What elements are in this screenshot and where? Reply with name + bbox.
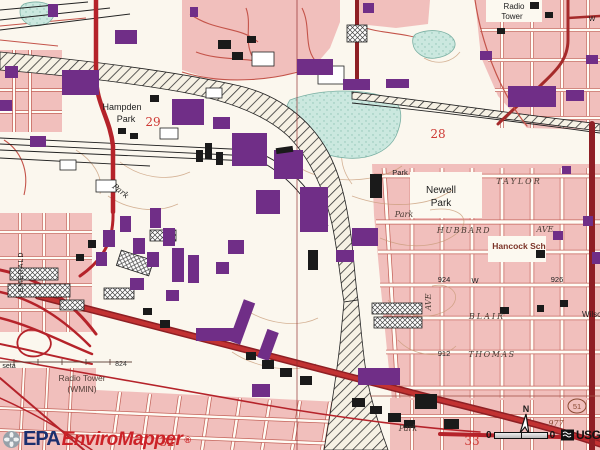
purple-building (343, 79, 370, 90)
scale-bar-graphic (494, 432, 548, 439)
black-building (246, 352, 256, 360)
purple-building (336, 250, 354, 262)
purple-building (150, 208, 161, 228)
purple-building (352, 228, 378, 246)
map-label: THOMAS (468, 350, 515, 359)
map-label: W (471, 276, 479, 285)
map-label: Park (398, 424, 418, 433)
topo-map-canvas[interactable]: RadioTowerHampdenPark29ParkParkNewellPar… (0, 0, 600, 450)
outlined-building (160, 128, 178, 139)
purple-building (130, 278, 144, 290)
hatched-building (347, 25, 367, 42)
black-building (444, 419, 459, 429)
black-building (130, 133, 138, 139)
purple-building (115, 30, 137, 44)
black-building (196, 150, 203, 162)
purple-building (216, 262, 229, 274)
map-label: (WMIN) (67, 384, 96, 394)
section-number-28: 28 (430, 127, 445, 141)
purple-building (163, 228, 175, 246)
purple-building (232, 133, 267, 166)
black-building (76, 254, 84, 261)
scale-bar: 0 0 (486, 430, 555, 441)
black-building (160, 320, 170, 328)
usgs-icon (561, 429, 575, 441)
map-label: EMERALD (18, 252, 25, 293)
purple-building (48, 4, 58, 17)
map-label: Park (117, 114, 136, 124)
map-label: Park (431, 198, 453, 209)
purple-building (172, 99, 204, 125)
map-label: Park (392, 168, 408, 177)
purple-building (256, 190, 280, 214)
purple-building (274, 150, 303, 179)
purple-building (386, 79, 409, 88)
scale-left-label: 0 (486, 430, 492, 441)
purple-building (166, 290, 179, 301)
black-building (352, 398, 365, 407)
section-number-29: 29 (145, 115, 160, 129)
usgs-logo-text: USGS (576, 428, 600, 442)
hatched-building (374, 317, 422, 328)
outlined-building (60, 160, 76, 170)
black-building (536, 250, 545, 258)
black-building (247, 36, 256, 43)
map-label: 824 (115, 361, 127, 368)
map-label: 977 (548, 419, 564, 428)
black-building (388, 413, 401, 422)
map-label: TAYLOR (496, 177, 542, 186)
purple-building (96, 252, 107, 266)
purple-building (592, 252, 600, 264)
purple-building (133, 238, 145, 254)
map-label: Radio Tower (58, 373, 105, 383)
black-building (415, 394, 437, 409)
black-building (370, 174, 382, 198)
purple-building (358, 368, 400, 385)
map-label: Park (394, 210, 414, 219)
black-building (537, 305, 544, 312)
purple-building (0, 100, 12, 111)
purple-building (297, 59, 333, 75)
black-building (118, 128, 126, 134)
map-label: Hampden (102, 102, 141, 112)
hatched-building (60, 300, 84, 310)
purple-building (190, 7, 198, 17)
map-label: seta (2, 363, 15, 370)
map-label: Tower (501, 12, 523, 21)
map-label: AVE (424, 293, 433, 311)
map-label: Hancock Sch (492, 241, 545, 251)
map-label: HUBBARD (436, 226, 491, 235)
purple-building (480, 51, 492, 60)
section-number-32: 32 (159, 435, 174, 449)
black-building (218, 40, 231, 49)
purple-building (103, 230, 115, 247)
purple-building (586, 55, 598, 64)
black-building (530, 2, 539, 9)
purple-building (30, 136, 46, 147)
purple-building (553, 231, 563, 240)
scale-right-label: 0 (550, 430, 556, 441)
map-label: 924 (438, 275, 451, 284)
purple-building (5, 66, 18, 78)
black-building (370, 406, 382, 414)
north-arrow-label: N (523, 404, 530, 414)
map-label: 926 (551, 275, 564, 284)
purple-building (213, 117, 230, 129)
black-building (262, 360, 274, 369)
purple-building (172, 248, 184, 282)
map-label: W (589, 16, 596, 23)
purple-building (363, 3, 374, 13)
purple-building (62, 70, 99, 95)
map-label: Newell (426, 185, 456, 196)
black-building (308, 250, 318, 270)
black-building (143, 308, 152, 315)
map-label: BLAIR (468, 312, 505, 321)
purple-building (508, 86, 556, 107)
purple-building (147, 252, 159, 267)
purple-building (300, 187, 328, 232)
black-building (232, 52, 243, 60)
black-building (497, 28, 505, 34)
black-building (560, 300, 568, 307)
section-number-33: 33 (464, 434, 479, 448)
black-building (300, 376, 312, 385)
black-building (280, 368, 292, 377)
black-building (88, 240, 96, 248)
purple-building (228, 240, 244, 254)
outlined-building (206, 88, 222, 98)
map-label: Radio (504, 2, 525, 11)
purple-building (566, 90, 584, 101)
map-label: 912 (438, 349, 451, 358)
hatched-building (104, 288, 134, 299)
route-51-label: 51 (573, 402, 581, 411)
hatched-building (372, 303, 422, 314)
purple-building (562, 166, 571, 174)
purple-building (196, 328, 236, 341)
outlined-building (252, 52, 274, 66)
purple-building (583, 216, 593, 226)
map-label: AVE (536, 225, 554, 234)
enviromapper-screen: RadioTowerHampdenPark29ParkParkNewellPar… (0, 0, 600, 450)
usgs-logo: USGS (561, 428, 600, 442)
purple-building (120, 216, 131, 232)
purple-building (252, 384, 270, 397)
black-building (205, 143, 212, 159)
black-building (150, 95, 159, 102)
purple-building (188, 255, 199, 283)
black-building (216, 152, 223, 165)
map-label: Wilson (582, 310, 600, 319)
black-building (545, 12, 553, 18)
